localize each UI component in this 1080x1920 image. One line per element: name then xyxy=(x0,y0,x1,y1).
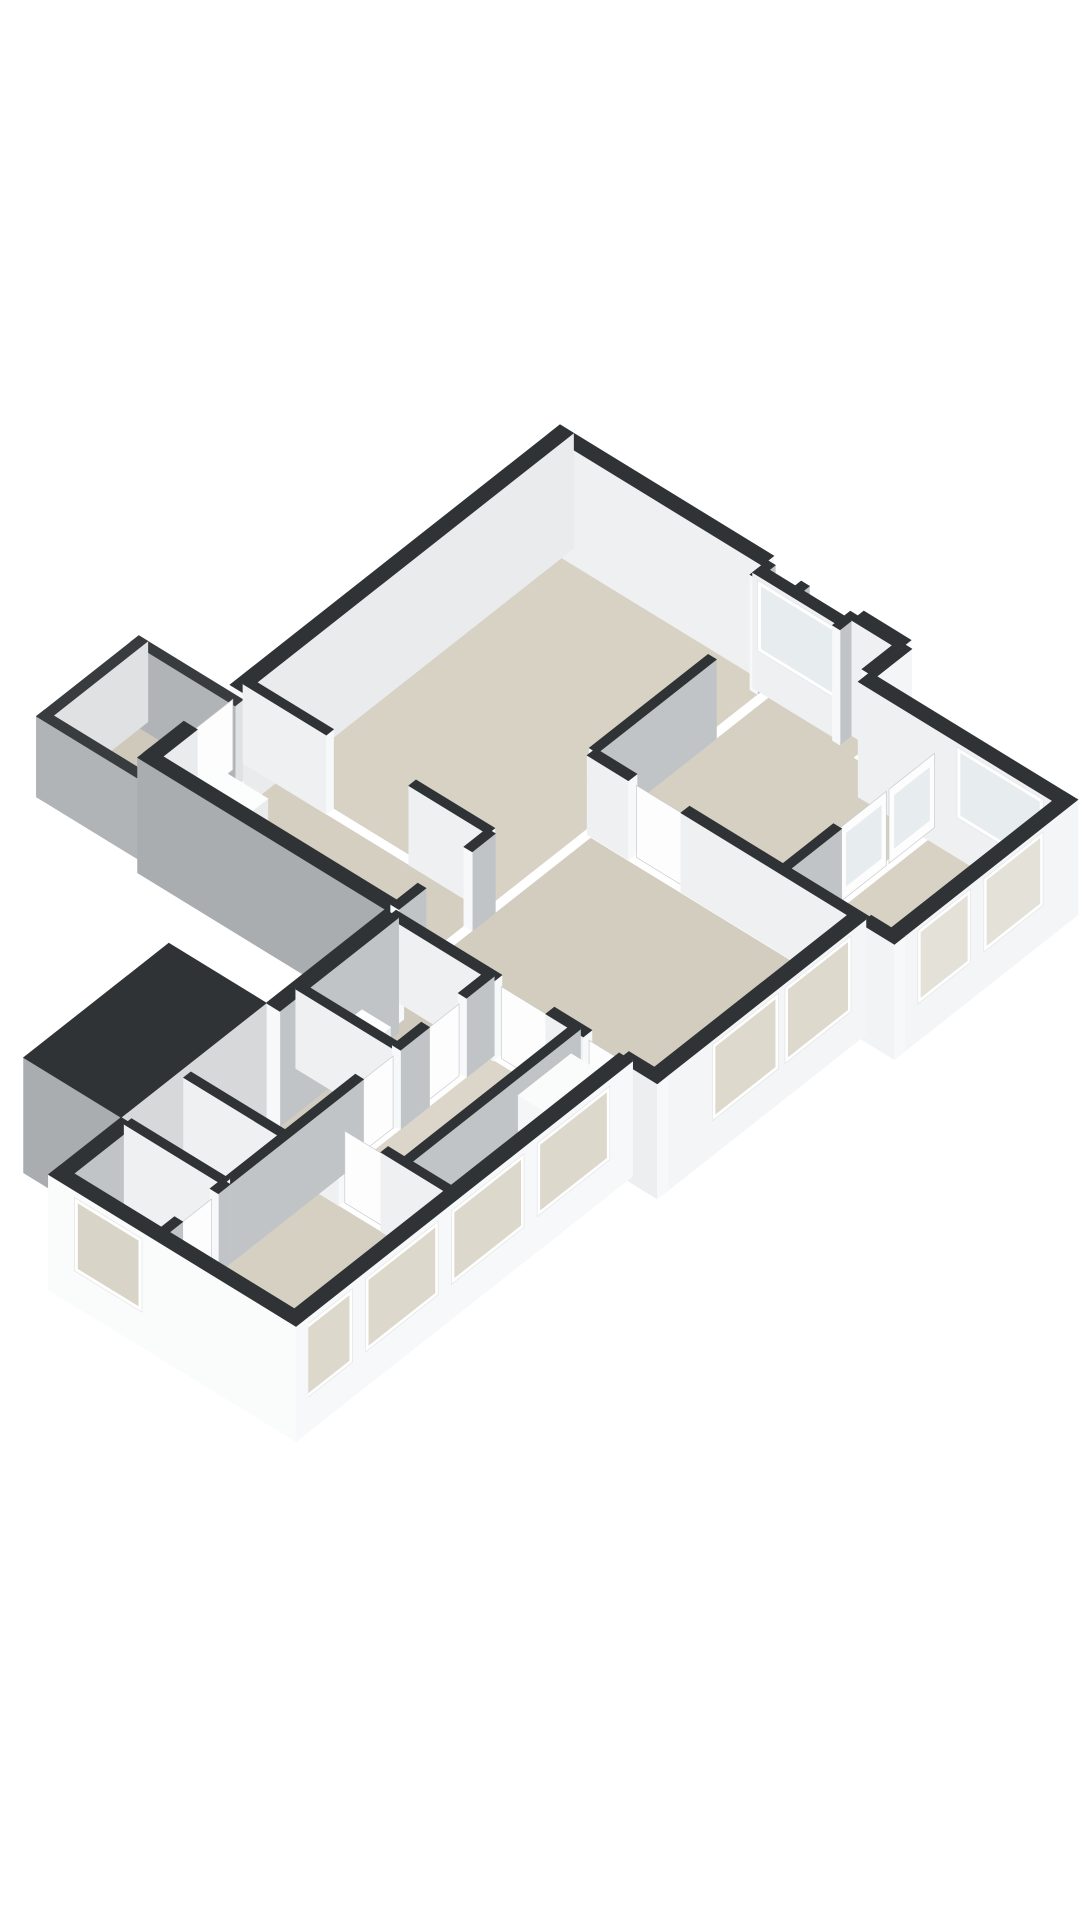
wall-hall-west-a-end xyxy=(458,993,466,1077)
floor-plan-page xyxy=(0,0,1080,1920)
door-bedroom-1 xyxy=(345,1131,383,1226)
wall-niche-east-end xyxy=(833,625,841,745)
wall-sitting-dining-a-end xyxy=(628,774,637,860)
wall-step-a-end xyxy=(894,936,905,1060)
balcony-wall-north-face-east xyxy=(235,700,243,787)
wall-step-b-end xyxy=(657,1075,668,1199)
wall-bed2-east-a-face xyxy=(218,1184,230,1273)
wall-kitchen-east-a-end xyxy=(464,847,472,931)
wall-sw-tail-end xyxy=(296,1317,308,1442)
wall-living-kitchen-a-end xyxy=(326,729,333,814)
wall-dining-hall-a-end xyxy=(493,975,502,1061)
floor-plan-3d xyxy=(0,0,1080,1920)
wall-hall-west-b-end xyxy=(392,1045,400,1129)
wall-tail-nw-a-end xyxy=(266,1003,280,1127)
